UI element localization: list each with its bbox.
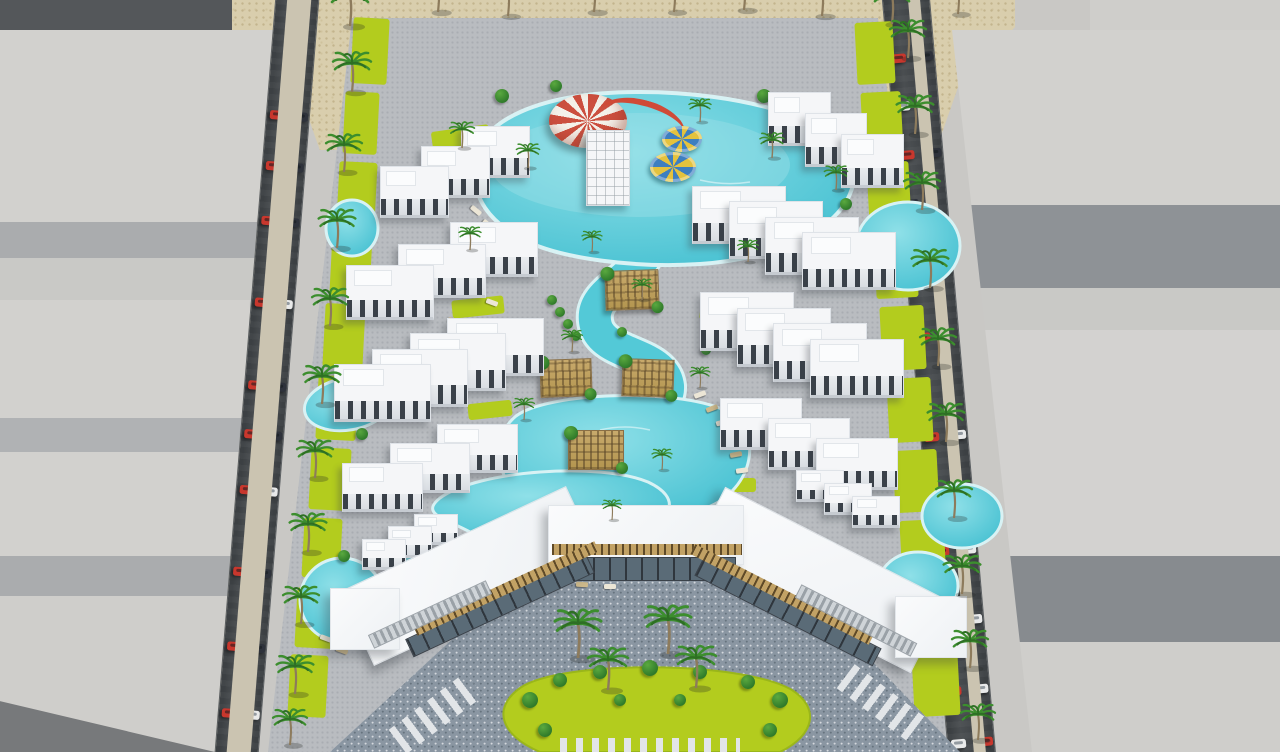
palm-tree [514, 398, 535, 422]
palm-tree [632, 279, 652, 302]
palm-tree [941, 0, 975, 18]
resort-aerial-render [0, 0, 1280, 752]
palm-tree [277, 655, 314, 698]
palm-tree [944, 555, 981, 598]
palm-tree [920, 328, 956, 370]
palm-tree [897, 95, 934, 138]
palm-tree [961, 704, 995, 743]
palm-tree [273, 709, 307, 748]
palm-tree [450, 122, 475, 151]
palm-tree [928, 403, 965, 446]
palm-tree [689, 99, 711, 125]
palm-tree [952, 630, 988, 672]
palm-tree [490, 0, 525, 20]
palm-tree [312, 288, 348, 330]
palm-tree [333, 52, 371, 96]
palm-tree [290, 513, 327, 556]
palm-tree [804, 0, 841, 20]
palm-tree [459, 227, 481, 253]
palm-tree [576, 0, 613, 16]
palm-tree [582, 231, 602, 254]
palm-tree [588, 648, 628, 694]
palm-trees [273, 0, 995, 749]
palm-tree [516, 144, 539, 171]
palm-tree [297, 440, 333, 482]
palm-tree [645, 606, 691, 659]
palm-tree [904, 172, 940, 214]
palm-tree [420, 0, 457, 16]
palm-tree [690, 367, 710, 390]
palm-tree [760, 133, 784, 161]
palm-tree [319, 209, 356, 252]
palm-tree [726, 0, 763, 14]
palm-tree [656, 0, 691, 16]
palm-tree [912, 249, 949, 292]
palm-tree [890, 20, 926, 62]
palm-trees-layer [0, 0, 1280, 752]
palm-tree [936, 480, 972, 522]
palm-tree [330, 0, 370, 31]
palm-tree [304, 365, 341, 408]
palm-tree [326, 134, 362, 176]
palm-tree [824, 166, 847, 193]
palm-tree [283, 586, 319, 628]
palm-tree [652, 449, 672, 472]
palm-tree [602, 500, 621, 522]
palm-tree [738, 240, 759, 264]
palm-tree [873, 0, 911, 28]
palm-tree [562, 330, 583, 354]
palm-tree [676, 646, 716, 692]
